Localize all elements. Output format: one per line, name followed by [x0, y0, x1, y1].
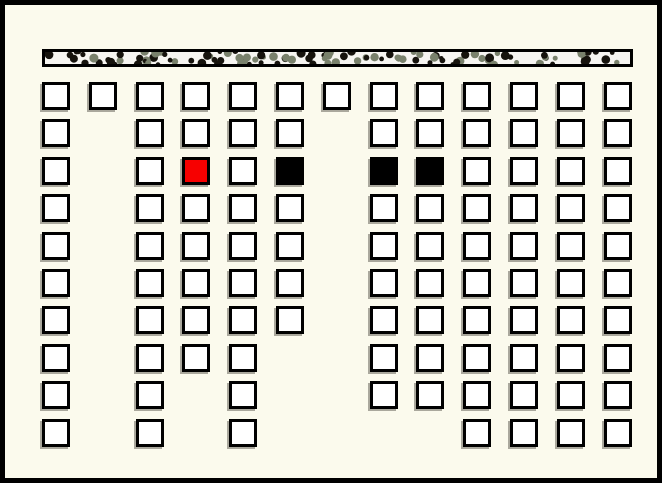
board-cell[interactable]	[557, 344, 585, 372]
board-cell[interactable]	[604, 82, 632, 110]
board-cell[interactable]	[370, 306, 398, 334]
board-cell[interactable]	[229, 419, 257, 447]
board-cell[interactable]	[510, 82, 538, 110]
board-cell[interactable]	[557, 381, 585, 409]
board-cell[interactable]	[42, 381, 70, 409]
board-cell[interactable]	[604, 194, 632, 222]
board-cell[interactable]	[89, 82, 117, 110]
board-cell[interactable]	[229, 381, 257, 409]
board-cell[interactable]	[229, 82, 257, 110]
board-cell[interactable]	[510, 232, 538, 260]
board-cell[interactable]	[604, 419, 632, 447]
board-cell[interactable]	[463, 194, 491, 222]
board-cell[interactable]	[276, 119, 304, 147]
board-cell[interactable]	[557, 119, 585, 147]
board-cell[interactable]	[42, 119, 70, 147]
board-cell[interactable]	[229, 194, 257, 222]
board-cell[interactable]	[42, 82, 70, 110]
board-cell[interactable]	[463, 344, 491, 372]
board-cell[interactable]	[182, 119, 210, 147]
board-cell[interactable]	[557, 419, 585, 447]
board-cell[interactable]	[182, 194, 210, 222]
board-cell[interactable]	[510, 306, 538, 334]
board-cell[interactable]	[416, 119, 444, 147]
board-cell[interactable]	[370, 381, 398, 409]
board-cell[interactable]	[604, 232, 632, 260]
game-window	[0, 0, 662, 483]
board-cell[interactable]	[416, 82, 444, 110]
board-cell[interactable]	[416, 381, 444, 409]
board-cell[interactable]	[370, 269, 398, 297]
game-board	[5, 5, 662, 483]
board-cell[interactable]	[136, 419, 164, 447]
board-cell[interactable]	[604, 119, 632, 147]
board-cell[interactable]	[510, 381, 538, 409]
board-cell[interactable]	[416, 194, 444, 222]
board-cell[interactable]	[42, 157, 70, 185]
board-cell[interactable]	[229, 269, 257, 297]
board-cell[interactable]	[276, 82, 304, 110]
board-cell[interactable]	[42, 306, 70, 334]
board-cell[interactable]	[557, 82, 585, 110]
board-cell[interactable]	[229, 344, 257, 372]
board-cell[interactable]	[370, 119, 398, 147]
board-cell[interactable]	[276, 232, 304, 260]
board-cell[interactable]	[416, 269, 444, 297]
board-cell[interactable]	[510, 419, 538, 447]
board-cell[interactable]	[136, 269, 164, 297]
board-cell-black[interactable]	[276, 157, 304, 185]
board-cell[interactable]	[276, 194, 304, 222]
board-cell[interactable]	[182, 82, 210, 110]
board-cell[interactable]	[557, 269, 585, 297]
board-cell[interactable]	[136, 344, 164, 372]
board-cell[interactable]	[229, 306, 257, 334]
board-cell[interactable]	[42, 344, 70, 372]
board-cell[interactable]	[182, 306, 210, 334]
board-cell[interactable]	[604, 306, 632, 334]
board-cell-black[interactable]	[370, 157, 398, 185]
board-cell[interactable]	[136, 232, 164, 260]
board-cell[interactable]	[276, 306, 304, 334]
board-cell[interactable]	[42, 232, 70, 260]
board-cell[interactable]	[510, 157, 538, 185]
board-cell[interactable]	[510, 119, 538, 147]
board-cell[interactable]	[42, 269, 70, 297]
board-cell[interactable]	[557, 232, 585, 260]
board-cell[interactable]	[557, 306, 585, 334]
board-cell[interactable]	[463, 381, 491, 409]
board-cell[interactable]	[463, 82, 491, 110]
board-cell[interactable]	[604, 157, 632, 185]
board-cell[interactable]	[182, 232, 210, 260]
board-cell[interactable]	[229, 119, 257, 147]
board-cell[interactable]	[136, 82, 164, 110]
board-cell[interactable]	[463, 232, 491, 260]
board-cell-black[interactable]	[416, 157, 444, 185]
board-cell[interactable]	[182, 344, 210, 372]
board-cell[interactable]	[416, 306, 444, 334]
board-cell[interactable]	[136, 381, 164, 409]
board-cell[interactable]	[510, 269, 538, 297]
board-cell[interactable]	[370, 82, 398, 110]
board-cell[interactable]	[463, 269, 491, 297]
board-cell[interactable]	[370, 232, 398, 260]
board-cell[interactable]	[416, 232, 444, 260]
board-cell[interactable]	[463, 157, 491, 185]
board-cell[interactable]	[182, 269, 210, 297]
board-cell[interactable]	[510, 344, 538, 372]
board-cell[interactable]	[604, 381, 632, 409]
board-cell[interactable]	[370, 194, 398, 222]
board-cell[interactable]	[370, 344, 398, 372]
board-cell-red[interactable]	[182, 157, 210, 185]
board-cell[interactable]	[136, 306, 164, 334]
board-cell[interactable]	[604, 269, 632, 297]
board-cell[interactable]	[42, 194, 70, 222]
board-cell[interactable]	[604, 344, 632, 372]
board-cell[interactable]	[557, 194, 585, 222]
board-cell[interactable]	[463, 419, 491, 447]
board-cell[interactable]	[416, 344, 444, 372]
board-cell[interactable]	[136, 157, 164, 185]
board-cell[interactable]	[510, 194, 538, 222]
board-cell[interactable]	[463, 306, 491, 334]
board-cell[interactable]	[136, 119, 164, 147]
board-cell[interactable]	[42, 419, 70, 447]
board-cell[interactable]	[229, 157, 257, 185]
board-cell[interactable]	[229, 232, 257, 260]
board-cell[interactable]	[136, 194, 164, 222]
board-cell[interactable]	[276, 269, 304, 297]
board-cell[interactable]	[323, 82, 351, 110]
board-cell[interactable]	[463, 119, 491, 147]
board-cell[interactable]	[557, 157, 585, 185]
